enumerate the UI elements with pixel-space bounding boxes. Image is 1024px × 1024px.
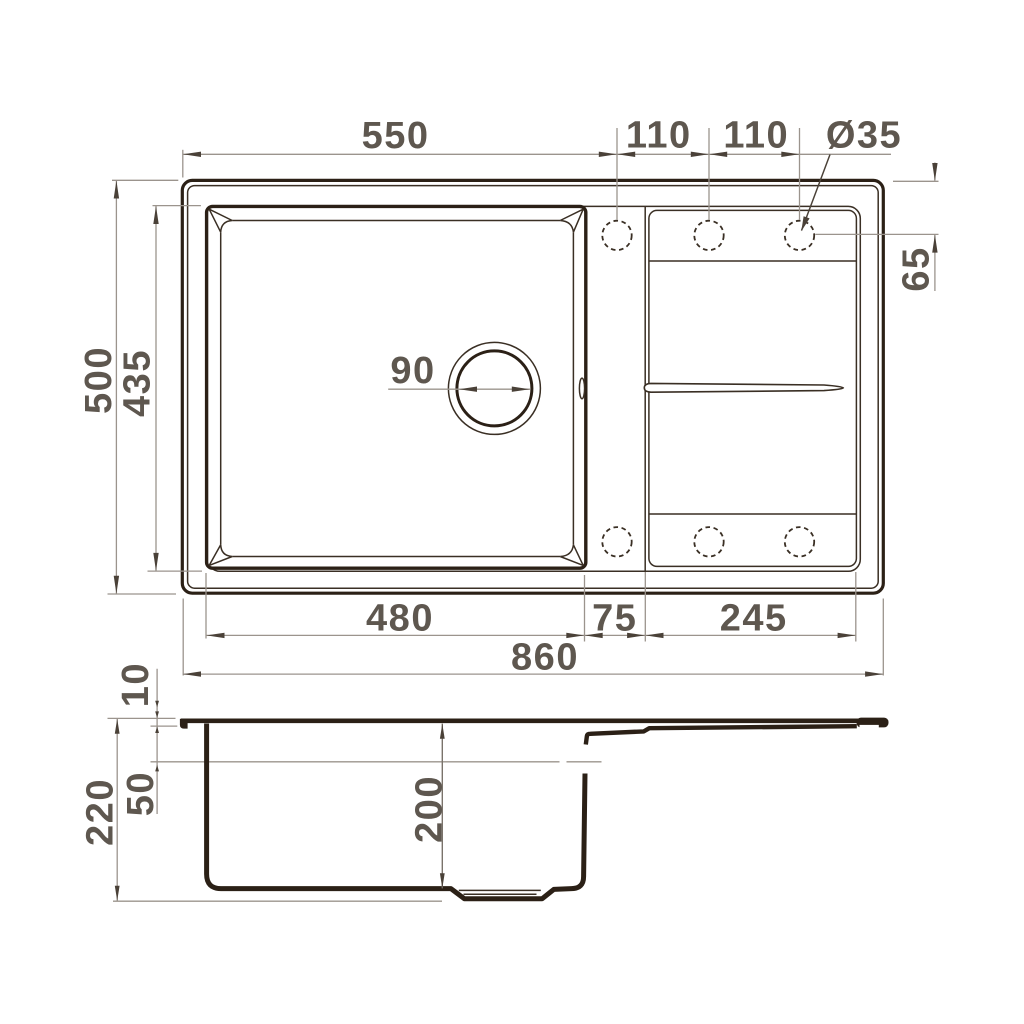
svg-text:500: 500 (78, 346, 120, 414)
svg-text:50: 50 (120, 771, 162, 816)
svg-text:110: 110 (626, 115, 692, 157)
svg-text:220: 220 (80, 778, 122, 846)
svg-text:Ø35: Ø35 (826, 115, 902, 157)
svg-text:65: 65 (896, 246, 938, 291)
svg-text:860: 860 (511, 637, 579, 679)
svg-text:245: 245 (720, 598, 788, 640)
svg-text:110: 110 (723, 115, 789, 157)
svg-text:200: 200 (409, 775, 451, 843)
svg-text:10: 10 (115, 662, 157, 707)
svg-text:90: 90 (390, 350, 435, 392)
svg-text:480: 480 (366, 598, 434, 640)
svg-text:435: 435 (117, 349, 159, 417)
svg-text:550: 550 (362, 115, 430, 157)
svg-text:75: 75 (592, 598, 637, 640)
